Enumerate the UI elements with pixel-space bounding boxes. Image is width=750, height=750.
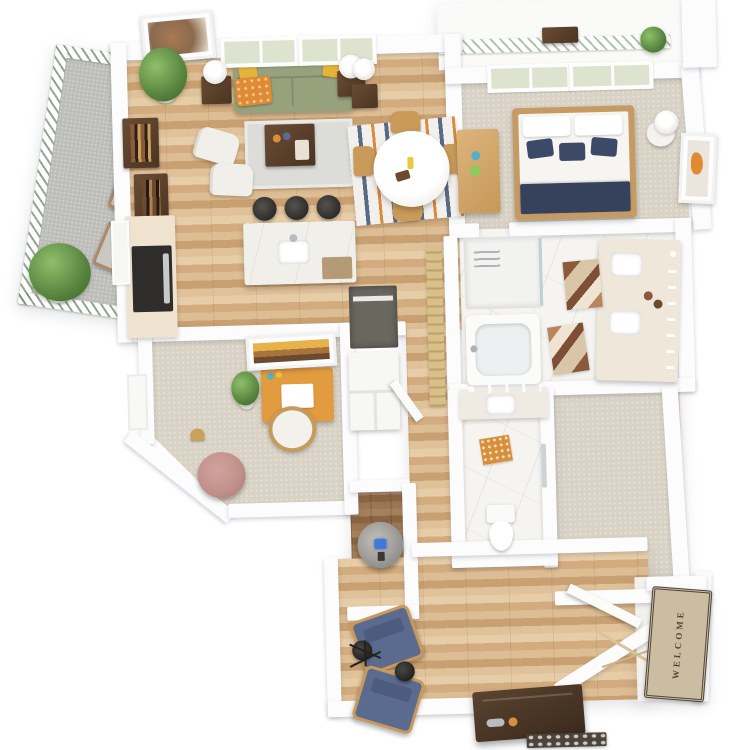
double-vanity	[596, 238, 682, 382]
bedroom-window	[569, 61, 654, 91]
floor-plan: WELCOME	[0, 0, 750, 750]
bathtub	[465, 314, 541, 386]
washer-display	[374, 539, 386, 549]
balcony-planter	[542, 27, 578, 44]
bed-pillow-navy	[526, 138, 554, 159]
bath-rug	[562, 259, 602, 310]
bed-pillow-navy	[559, 142, 585, 161]
welcome-mat: WELCOME	[644, 586, 713, 702]
bed-pillow	[574, 114, 623, 135]
bed	[512, 105, 637, 220]
kitchen-island	[243, 220, 357, 285]
wall-den-bottom	[228, 501, 356, 518]
wall-balcony-corner	[681, 0, 717, 68]
bed-pillow-navy	[590, 137, 617, 157]
powder-sink	[486, 394, 517, 415]
laptop	[281, 384, 314, 409]
powder-sconces	[465, 384, 541, 394]
den-floor-lamp	[190, 428, 204, 440]
bedroom-wall-art	[678, 133, 717, 205]
dresser	[457, 129, 501, 214]
powder-rug	[479, 435, 513, 466]
bath-rug	[547, 323, 590, 376]
vanity-sink	[609, 310, 642, 335]
welcome-mat-text: WELCOME	[670, 609, 685, 680]
powder-vanity	[459, 388, 548, 420]
vanity-sink	[610, 252, 643, 277]
shower-fixtures	[474, 247, 501, 268]
den-closet-shelves	[348, 351, 400, 430]
accent-chair	[209, 163, 253, 197]
pebble-shoe-tray	[526, 732, 606, 748]
sofa-throw-orange	[234, 75, 273, 107]
wall-shelf	[122, 118, 159, 169]
bedroom-window	[487, 63, 572, 93]
bed-pillow	[522, 116, 571, 137]
living-window	[220, 36, 299, 68]
floor-plan-canvas: { "scene": { "type": "3d-floor-plan-top-…	[0, 0, 750, 750]
den-side-door	[127, 374, 148, 431]
vanity-sconces	[666, 248, 677, 372]
side-table	[351, 84, 378, 109]
bed-throw-navy	[520, 181, 631, 214]
coffee-table	[264, 124, 315, 167]
den-wall-art	[245, 331, 337, 370]
shower	[463, 236, 543, 310]
kitchen-window	[111, 220, 131, 284]
dining-chair	[353, 146, 376, 177]
island-sink	[277, 240, 310, 265]
kitchen-range	[132, 245, 174, 312]
den-closet-alcove	[349, 285, 399, 348]
dining-chair	[390, 111, 421, 134]
